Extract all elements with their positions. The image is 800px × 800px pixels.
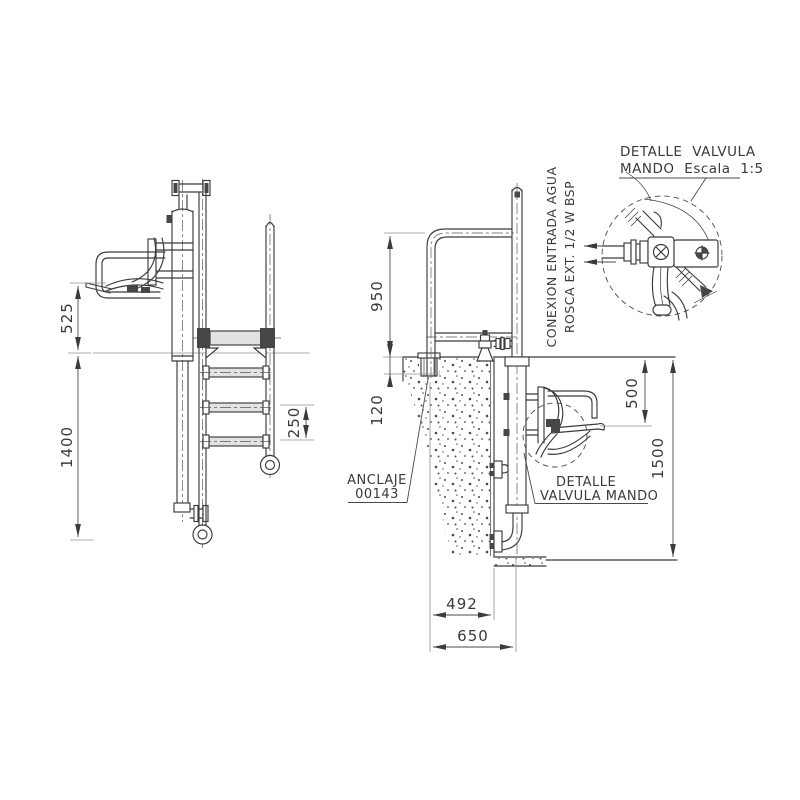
dim-1500: 1500 bbox=[649, 360, 673, 557]
lift-column-section bbox=[490, 357, 530, 552]
dim-250: 250 bbox=[280, 405, 314, 440]
dim-500-label: 500 bbox=[623, 377, 641, 409]
mast bbox=[512, 183, 522, 557]
dim-525: 525 bbox=[58, 283, 106, 353]
dim-120-label: 120 bbox=[368, 394, 386, 426]
dim-1400: 1400 bbox=[58, 356, 94, 540]
detail-title-line2: MANDO Escala 1:5 bbox=[620, 161, 764, 177]
seat-section-view bbox=[526, 387, 604, 457]
top-crossbar bbox=[172, 181, 210, 196]
lift-column-front bbox=[167, 195, 209, 522]
front-view: 525 1400 250 bbox=[58, 179, 314, 548]
valve-assembly-detail bbox=[602, 172, 718, 320]
water-connection-note: CONEXION ENTRADA AGUA ROSCA EXT. 1/2 W B… bbox=[544, 167, 616, 348]
dim-650-label: 650 bbox=[457, 627, 489, 645]
seat-front-view bbox=[86, 238, 193, 298]
dim-525-label: 525 bbox=[58, 302, 76, 334]
valve-detail-view: DETALLE VALVULA MANDO Escala 1:5 bbox=[602, 144, 764, 320]
dim-492-label: 492 bbox=[446, 595, 478, 613]
dim-1400-label: 1400 bbox=[58, 426, 76, 468]
valve-detail-label-line1: DETALLE bbox=[556, 475, 616, 490]
anchor-label-line2: 00143 bbox=[355, 487, 399, 502]
dim-950-label: 950 bbox=[368, 280, 386, 312]
section-view: DETALLE VALVULA MANDO ANCLAJE 00143 950 … bbox=[347, 167, 677, 653]
drawing-sheet: 525 1400 250 bbox=[0, 0, 800, 800]
water-connection-line1: CONEXION ENTRADA AGUA bbox=[544, 167, 559, 348]
dim-500: 500 bbox=[600, 360, 652, 426]
valve-detail-label: DETALLE VALVULA MANDO bbox=[524, 453, 658, 504]
deck-step bbox=[197, 328, 275, 358]
ladder-rungs bbox=[200, 366, 272, 448]
valve-detail-label-line2: VALVULA MANDO bbox=[540, 489, 658, 504]
water-connection-line2: ROSCA EXT. 1/2 W BSP bbox=[562, 181, 577, 333]
detail-title-line1: DETALLE VALVULA bbox=[620, 144, 756, 160]
anchor-label-line1: ANCLAJE bbox=[347, 473, 407, 488]
dim-250-label: 250 bbox=[285, 407, 303, 439]
anchor-sleeve bbox=[418, 353, 440, 377]
dim-1500-label: 1500 bbox=[649, 437, 667, 479]
pool-lift-technical-drawing: 525 1400 250 bbox=[0, 0, 800, 800]
water-inlet-fitting bbox=[477, 330, 512, 361]
dim-950: 950 bbox=[368, 233, 425, 354]
valve-detail-title: DETALLE VALVULA MANDO Escala 1:5 bbox=[619, 144, 764, 201]
